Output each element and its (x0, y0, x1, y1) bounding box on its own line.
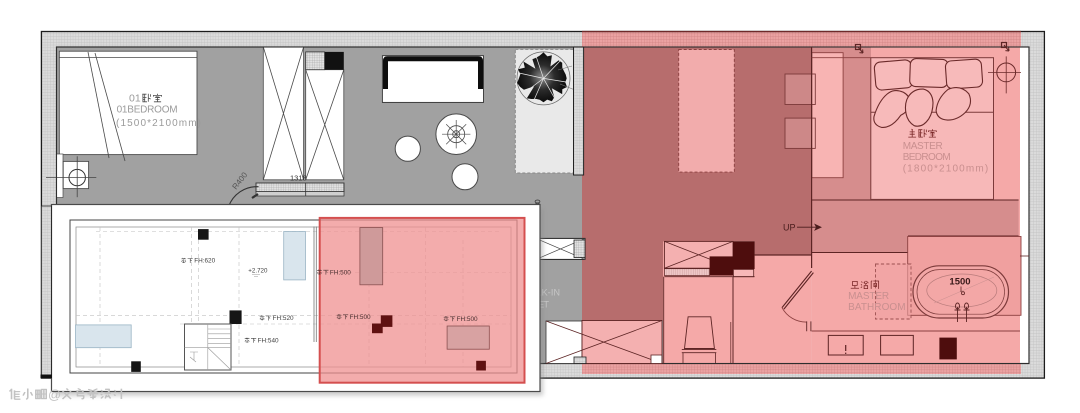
svg-text:01BEDROOM: 01BEDROOM (117, 105, 178, 116)
svg-text:(1500*2100mm): (1500*2100mm) (116, 118, 201, 129)
svg-text:MASTER: MASTER (903, 141, 943, 152)
svg-text:(1800*2100mm): (1800*2100mm) (903, 163, 989, 174)
svg-text:FH:500: FH:500 (350, 314, 371, 321)
svg-text:@: @ (48, 387, 61, 402)
svg-text:FH:620: FH:620 (194, 258, 215, 265)
svg-text:+2.720: +2.720 (248, 268, 268, 275)
svg-text:1500: 1500 (949, 277, 970, 288)
svg-text:BEDROOM: BEDROOM (903, 152, 951, 163)
svg-text:FH:540: FH:540 (258, 338, 279, 345)
svg-text:01: 01 (129, 92, 141, 104)
svg-text:UP: UP (783, 223, 796, 233)
svg-text:BATHROOM: BATHROOM (848, 302, 906, 313)
svg-text:FH:520: FH:520 (273, 315, 294, 322)
svg-text:MASTER: MASTER (848, 291, 889, 302)
svg-text:FH:500: FH:500 (330, 269, 351, 276)
svg-text:1318: 1318 (290, 174, 307, 183)
svg-text:FH:500: FH:500 (457, 316, 478, 323)
